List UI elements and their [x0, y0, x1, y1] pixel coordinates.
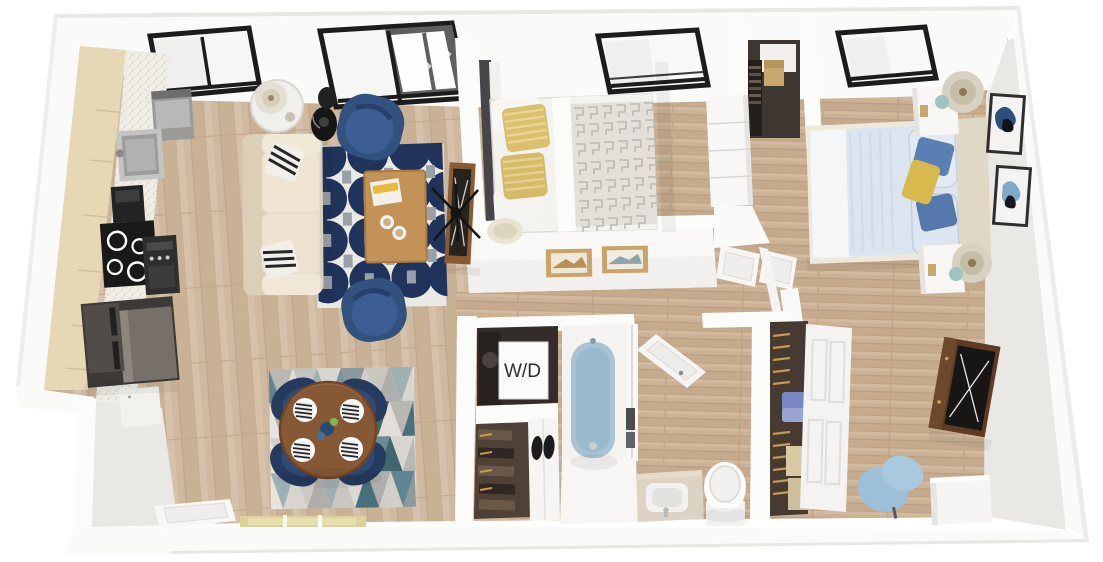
svg-text:W/D: W/D [504, 361, 541, 382]
